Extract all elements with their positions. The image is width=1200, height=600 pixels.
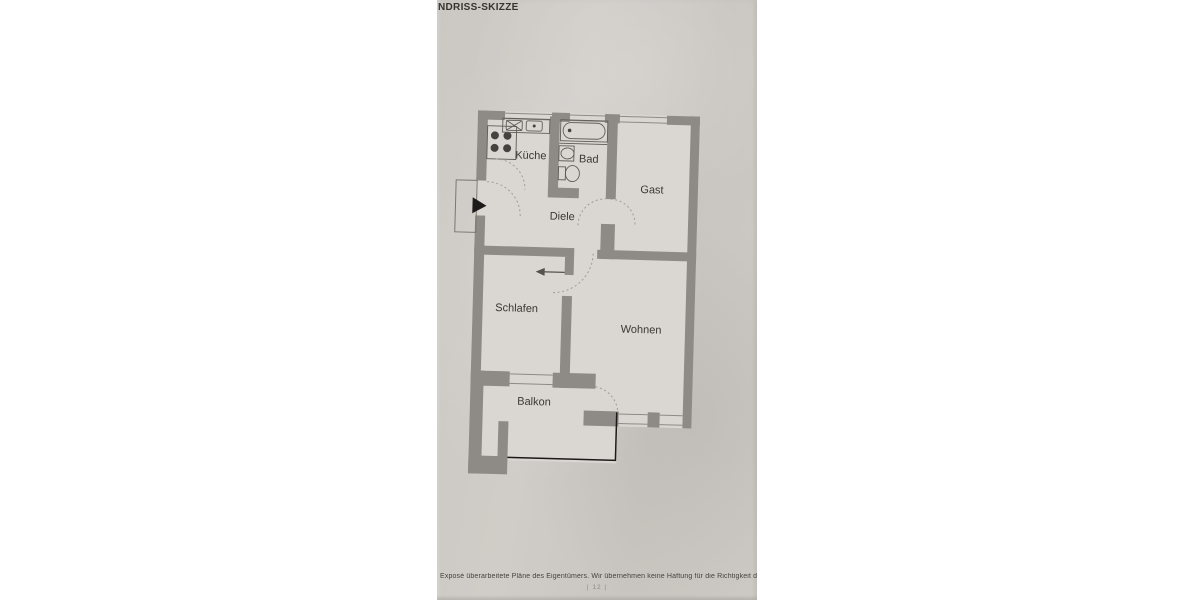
room-label-kueche: Küche — [515, 149, 547, 162]
page-title: NDRISS-SKIZZE — [438, 2, 519, 13]
floor-plan: Küche Bad Gast Diele Schlafen Wohnen Bal… — [443, 105, 719, 497]
room-label-bad: Bad — [579, 153, 599, 166]
footer-disclaimer: Exposé überarbeitete Pläne des Eigentüme… — [440, 573, 757, 580]
room-label-gast: Gast — [640, 184, 664, 197]
footer-page-number: | 12 | — [437, 584, 757, 591]
scan-background: NDRISS-SKIZZE — [0, 0, 1200, 600]
paper-bottom-shade — [437, 595, 757, 600]
room-label-balkon: Balkon — [517, 396, 551, 409]
room-label-schlafen: Schlafen — [495, 302, 538, 315]
room-label-wohnen: Wohnen — [621, 323, 662, 336]
paper-page: NDRISS-SKIZZE — [437, 0, 757, 600]
room-label-diele: Diele — [549, 210, 574, 223]
